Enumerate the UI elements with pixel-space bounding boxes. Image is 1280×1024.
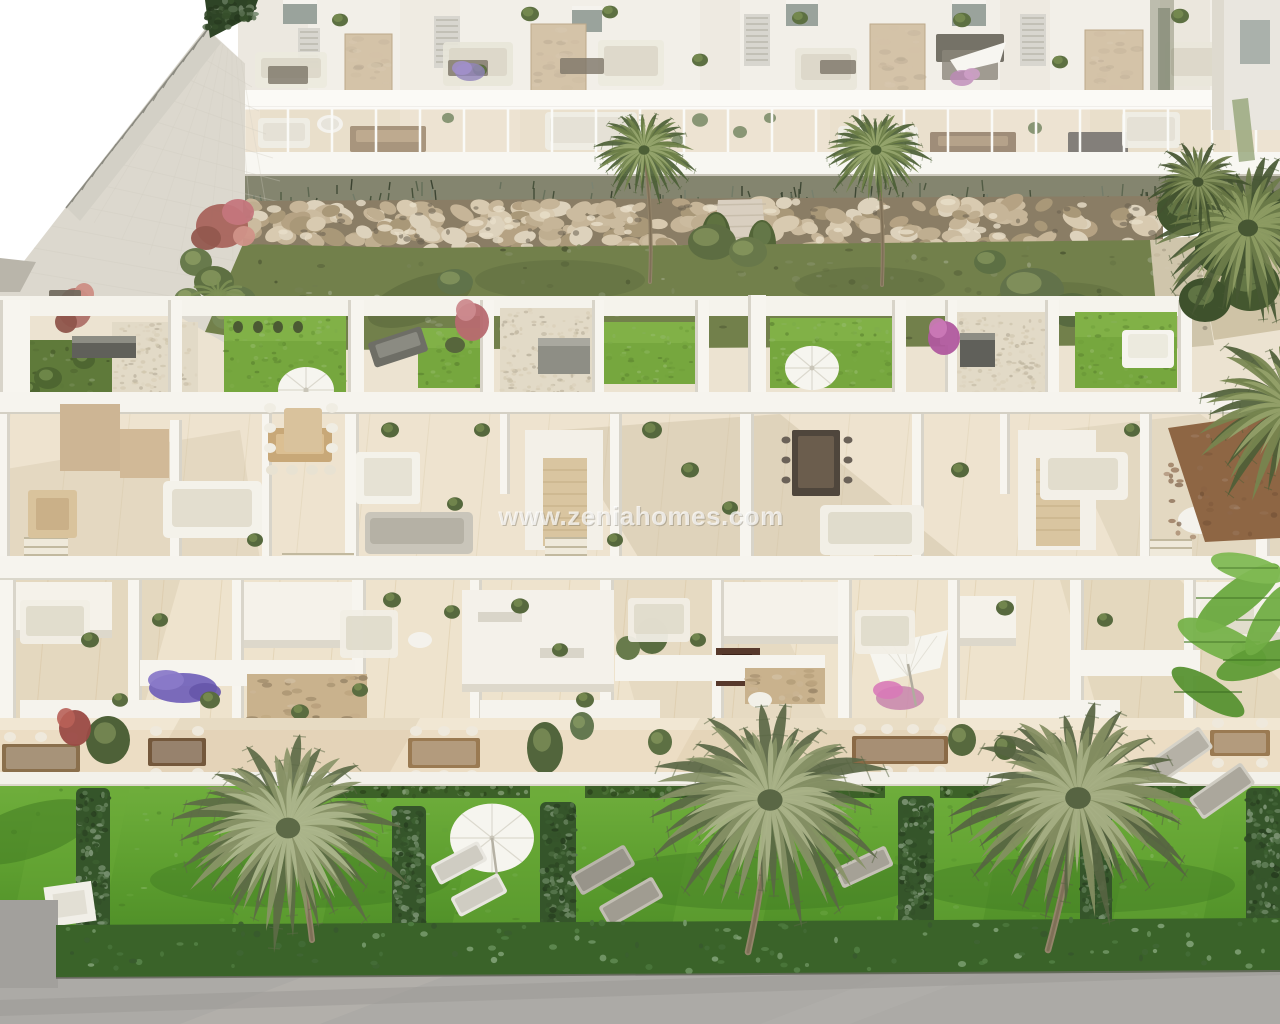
svg-text:www.zeniahomes.com: www.zeniahomes.com <box>497 501 783 531</box>
